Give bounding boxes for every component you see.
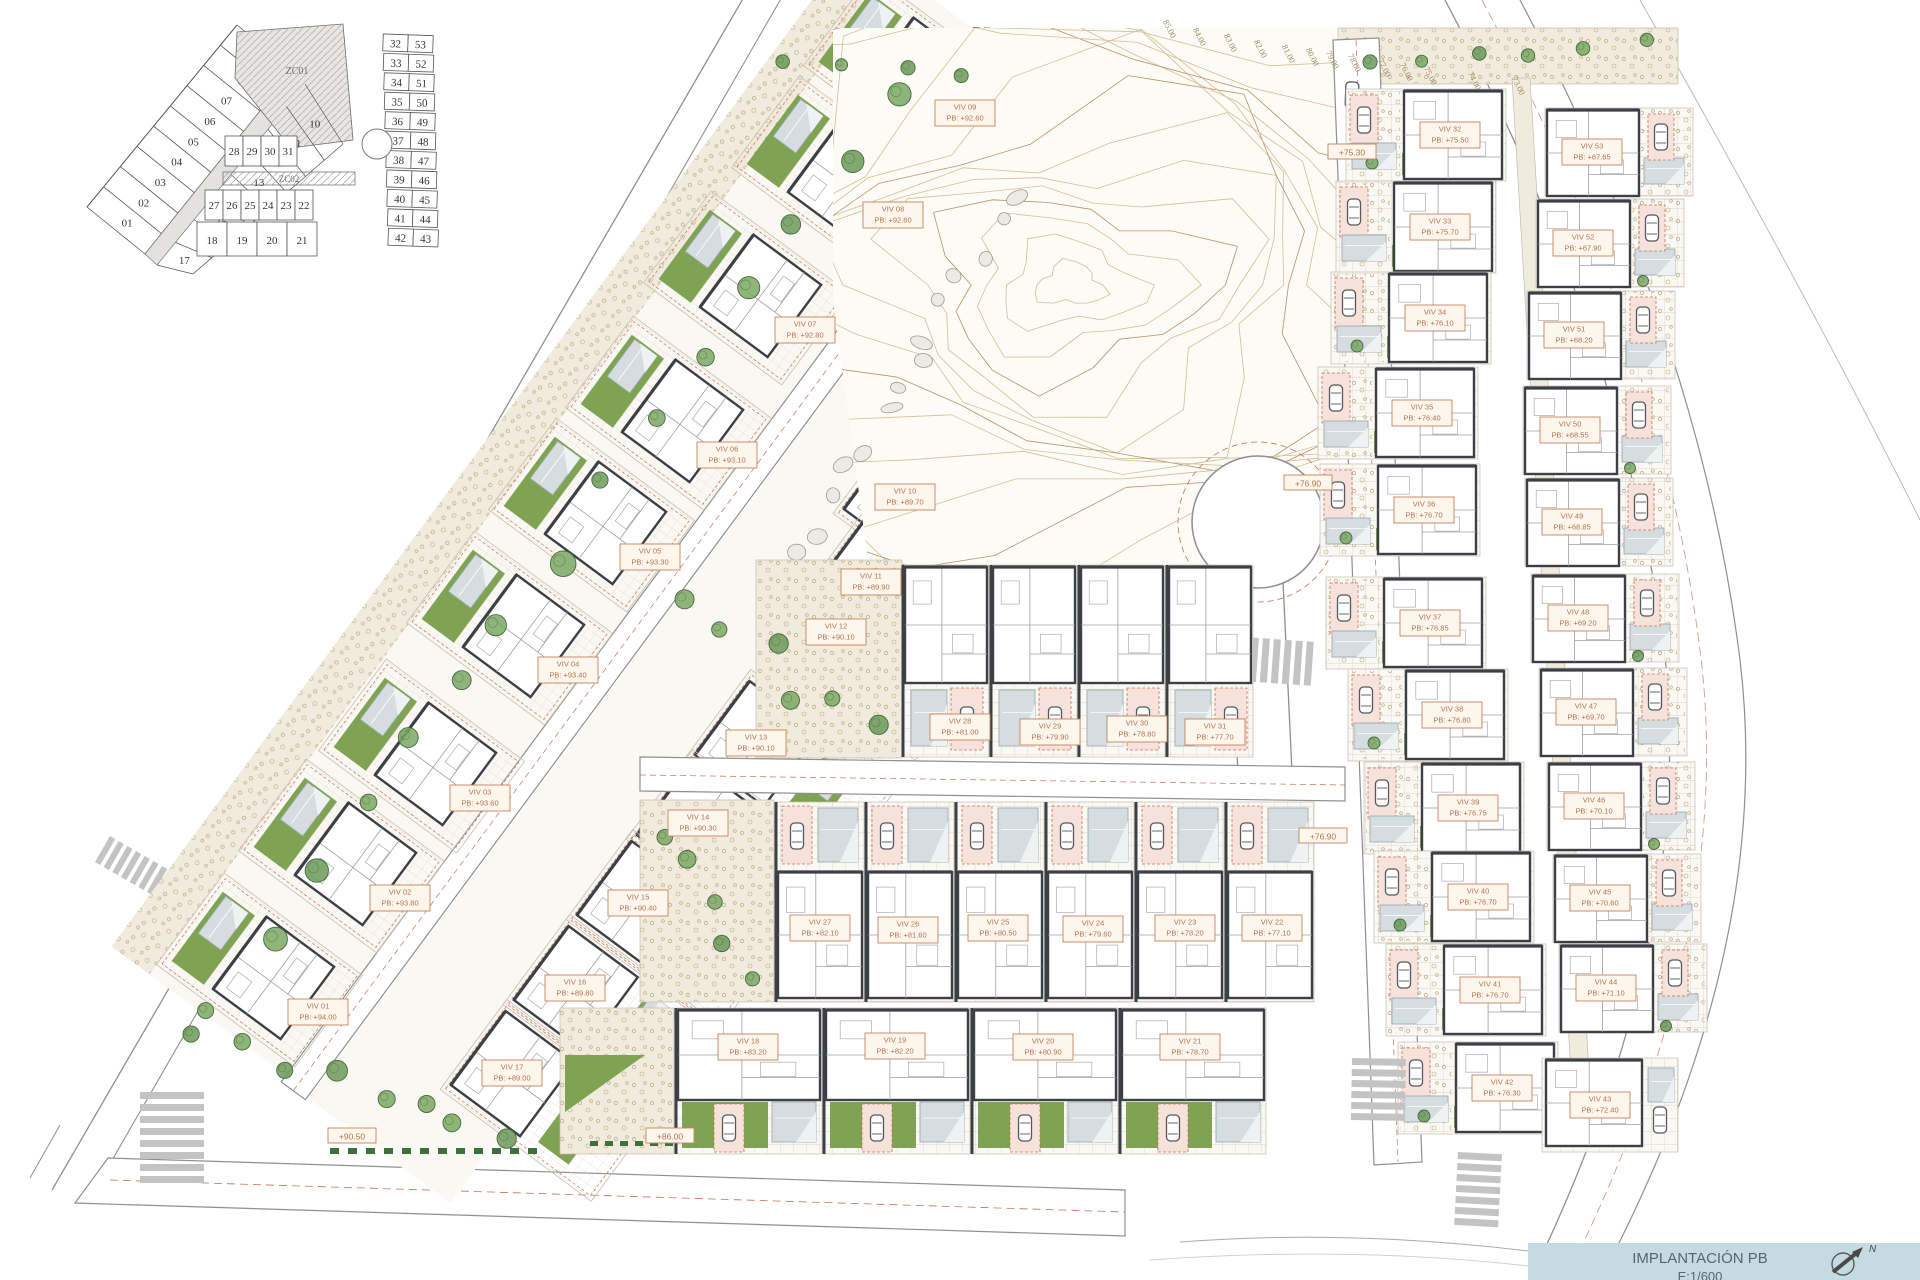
villa-ground-floor-level: PB: +76.70 [1459, 898, 1496, 907]
tree-icon [1416, 55, 1428, 67]
kp-lot-number: 38 [393, 155, 405, 167]
villa-plot-VIV-26 [866, 802, 954, 1002]
tree-icon [738, 277, 760, 299]
car-icon [971, 823, 984, 849]
tree-icon [745, 972, 759, 986]
car-body [1019, 1115, 1032, 1141]
crosswalk-stripe [140, 1128, 204, 1135]
villa-id: VIV 05 [639, 547, 662, 556]
kp-lot-number: 24 [263, 200, 275, 212]
hedge [348, 1148, 357, 1154]
kp-culdesac [362, 129, 392, 159]
crosswalk-stripe [1351, 1091, 1405, 1099]
villa-ground-floor-level: PB: +81.60 [889, 931, 926, 940]
kp-lot-number: 27 [209, 200, 221, 212]
villa-id: VIV 33 [1429, 217, 1452, 226]
tree-icon [1661, 1021, 1672, 1032]
car-icon [1410, 1060, 1423, 1086]
car-body [1061, 823, 1074, 849]
car-icon [1635, 494, 1648, 520]
villa-id: VIV 12 [825, 622, 848, 631]
car-body [881, 823, 894, 849]
villa-id: VIV 43 [1589, 1095, 1612, 1104]
villa-id: VIV 18 [737, 1037, 760, 1046]
tree-icon [1363, 55, 1377, 69]
car-body [1338, 595, 1351, 621]
car-icon [1655, 124, 1668, 150]
kp-lot-number: 07 [221, 96, 233, 108]
car-icon [1386, 869, 1399, 895]
tree-icon [198, 1003, 214, 1019]
car-icon [1663, 870, 1676, 896]
villa-label: VIV 34PB: +76.10 [1405, 305, 1465, 331]
tree-icon [183, 1026, 199, 1042]
swimming-pool [908, 808, 948, 862]
villa-ground-floor-level: PB: +76.30 [1483, 1089, 1520, 1098]
villa-label: VIV 05PB: +93.30 [620, 544, 680, 570]
villa-id: VIV 26 [897, 920, 920, 929]
villa-id: VIV 45 [1589, 888, 1612, 897]
tree-icon [305, 859, 328, 882]
car-body [871, 1115, 884, 1141]
car-body [1376, 780, 1389, 806]
kp-lot-number: 33 [390, 58, 402, 70]
villa-id: VIV 09 [954, 103, 977, 112]
swimming-pool [1646, 812, 1686, 838]
kp-lot-number: 23 [281, 200, 293, 212]
crosswalk-stripe [140, 1176, 204, 1183]
villa-id: VIV 51 [1563, 325, 1586, 334]
kp-lot-number: 19 [237, 235, 249, 247]
villa-label: VIV 19PB: +82.20 [865, 1033, 925, 1059]
villa-id: VIV 32 [1439, 125, 1462, 134]
villa-ground-floor-level: PB: +79.90 [1031, 733, 1068, 742]
site-plan-drawing: 010203040506070809ZC01101112131415161728… [0, 0, 1920, 1280]
kp-lot-number: 44 [419, 214, 431, 226]
swimming-pool [1635, 249, 1675, 275]
villa-label: VIV 51PB: +68.20 [1544, 322, 1604, 348]
tree-icon [1394, 919, 1406, 931]
villa-ground-floor-level: PB: +76.40 [1403, 414, 1440, 423]
villa-ground-floor-level: PB: +80.50 [979, 929, 1016, 938]
car-icon [1332, 482, 1345, 508]
villa-label: VIV 38PB: +76.80 [1422, 702, 1482, 728]
swimming-pool [1630, 624, 1670, 650]
swimming-pool [1216, 1102, 1260, 1142]
tree-icon [712, 622, 727, 637]
villa-id: VIV 46 [1583, 796, 1606, 805]
villa-ground-floor-level: PB: +92.60 [946, 114, 983, 123]
car-body [1241, 823, 1254, 849]
kp-zone-label: ZC02 [279, 174, 300, 184]
house-floorplan [1081, 567, 1163, 683]
swimming-pool [1178, 808, 1218, 862]
tree-icon [888, 83, 911, 106]
car-body [791, 823, 804, 849]
kp-lot-number: 21 [297, 235, 308, 247]
car-icon [1348, 199, 1361, 225]
villa-id: VIV 48 [1567, 608, 1590, 617]
car-icon [1061, 823, 1074, 849]
car-icon [1376, 780, 1389, 806]
kp-lot-number: 03 [155, 177, 167, 189]
tree-icon [708, 895, 723, 910]
hedge [456, 1148, 465, 1154]
swimming-pool [818, 808, 858, 862]
villa-ground-floor-level: PB: +93.80 [381, 899, 418, 908]
road-level-tag: +75.30 [1328, 144, 1376, 159]
tree-icon [1368, 737, 1380, 749]
car-icon [1657, 778, 1670, 804]
swimming-pool [1324, 421, 1368, 447]
villa-ground-floor-level: PB: +83.20 [729, 1048, 766, 1057]
villa-label: VIV 09PB: +92.60 [935, 100, 995, 126]
villa-id: VIV 17 [501, 1063, 524, 1072]
villa-label: VIV 11PB: +89.90 [841, 569, 901, 595]
villa-plot-VIV-20 [972, 1008, 1118, 1154]
road-level-tag: +86.00 [646, 1128, 694, 1143]
villa-id: VIV 31 [1204, 722, 1227, 731]
villa-label: VIV 35PB: +76.40 [1392, 400, 1452, 426]
car-icon [1669, 960, 1682, 986]
villa-plot-VIV-24 [1046, 802, 1134, 1002]
villa-label: VIV 07PB: +92.80 [775, 317, 835, 343]
car-icon [1151, 823, 1164, 849]
hedge [635, 1141, 643, 1146]
tree-icon [497, 1129, 516, 1148]
tree-icon [776, 55, 790, 69]
villa-id: VIV 07 [794, 320, 817, 329]
tree-icon [485, 615, 506, 636]
swimming-pool [1342, 235, 1386, 261]
villa-ground-floor-level: PB: +89.70 [886, 498, 923, 507]
villa-id: VIV 39 [1457, 798, 1480, 807]
villa-label: VIV 46PB: +70.10 [1564, 793, 1624, 819]
car-body [1410, 1060, 1423, 1086]
villa-ground-floor-level: PB: +68.20 [1555, 336, 1592, 345]
kp-lot-number: 41 [394, 213, 405, 225]
swimming-pool [772, 1102, 816, 1142]
tree-icon [697, 349, 714, 366]
villa-label: VIV 01PB: +94.00 [288, 999, 348, 1025]
car-icon [1338, 595, 1351, 621]
villa-label: VIV 14PB: +90.30 [668, 810, 728, 836]
kp-lot-number: 46 [418, 175, 430, 187]
car-body [1649, 684, 1662, 710]
villa-plot-VIV-21 [1120, 1008, 1266, 1154]
villa-ground-floor-level: PB: +93.30 [631, 558, 668, 567]
north-label: N [1869, 1244, 1877, 1255]
hedge [620, 1141, 628, 1146]
car-body [1343, 290, 1356, 316]
villa-ground-floor-level: PB: +77.70 [1196, 733, 1233, 742]
villa-ground-floor-level: PB: +70.10 [1575, 807, 1612, 816]
villa-id: VIV 10 [894, 487, 917, 496]
road-level-value: +76.90 [1295, 479, 1322, 489]
kp-lot-number: 30 [265, 146, 277, 158]
drawing-scale: E:1/600 [1678, 1269, 1723, 1280]
kp-lot-number: 34 [391, 77, 403, 89]
villa-ground-floor-level: PB: +71.10 [1587, 989, 1624, 998]
villa-label: VIV 10PB: +89.70 [875, 484, 935, 510]
tree-icon [675, 590, 694, 609]
villa-id: VIV 40 [1467, 887, 1490, 896]
tree-icon [1640, 33, 1653, 46]
villa-ground-floor-level: PB: +93.40 [549, 671, 586, 680]
villa-ground-floor-level: PB: +80.90 [1024, 1048, 1061, 1057]
tree-icon [781, 691, 799, 709]
swimming-pool [1626, 341, 1666, 367]
kp-lot-number: 26 [227, 200, 239, 212]
villa-id: VIV 23 [1174, 918, 1197, 927]
swimming-pool [1638, 718, 1678, 744]
villa-id: VIV 49 [1561, 512, 1584, 521]
villa-label: VIV 30PB: +78.80 [1107, 716, 1167, 742]
villa-ground-floor-level: PB: +90.10 [737, 744, 774, 753]
tree-icon [1576, 42, 1590, 56]
villa-label: VIV 08PB: +92.60 [863, 202, 923, 228]
tree-icon [1649, 839, 1660, 850]
crosswalk-stripe [140, 1140, 204, 1147]
car-icon [1637, 307, 1650, 333]
villa-id: VIV 14 [687, 813, 710, 822]
villa-id: VIV 47 [1575, 702, 1598, 711]
villa-ground-floor-level: PB: +78.20 [1166, 929, 1203, 938]
villa-label: VIV 47PB: +69.70 [1556, 699, 1616, 725]
hedge [330, 1148, 339, 1154]
car-body [1360, 687, 1373, 713]
hedge [605, 1141, 613, 1146]
villa-label: VIV 23PB: +78.20 [1155, 915, 1215, 941]
tree-icon [1418, 1110, 1430, 1122]
villa-id: VIV 21 [1179, 1037, 1202, 1046]
villa-id: VIV 50 [1559, 420, 1582, 429]
car-icon [1649, 684, 1662, 710]
kp-zone-label: ZC01 [286, 66, 309, 77]
road-level-value: +75.30 [1339, 148, 1366, 158]
house-floorplan [905, 567, 987, 683]
tree-icon [592, 472, 608, 488]
hedge [438, 1148, 447, 1154]
villa-id: VIV 37 [1419, 613, 1442, 622]
swimming-pool [1648, 1068, 1674, 1102]
villa-ground-floor-level: PB: +76.80 [1433, 716, 1470, 725]
car-body [1167, 1115, 1180, 1141]
villa-ground-floor-level: PB: +77.10 [1253, 929, 1290, 938]
tree-icon [418, 1096, 435, 1113]
villa-ground-floor-level: PB: +67.65 [1573, 153, 1610, 162]
tree-icon [901, 61, 915, 75]
crosswalk-stripe [1351, 1102, 1405, 1110]
kp-lot-number: 29 [247, 146, 259, 158]
villa-ground-floor-level: PB: +69.70 [1567, 713, 1604, 722]
car-body [1348, 199, 1361, 225]
car-body [1633, 402, 1646, 428]
crosswalk-stripe [140, 1116, 204, 1123]
villa-label: VIV 53PB: +67.65 [1562, 139, 1622, 165]
villa-id: VIV 11 [860, 572, 882, 581]
villa-ground-floor-level: PB: +89.90 [852, 583, 889, 592]
road-level-value: +90.50 [339, 1132, 366, 1142]
tree-icon [398, 728, 418, 748]
villa-ground-floor-level: PB: +76.70 [1471, 991, 1508, 1000]
villa-ground-floor-level: PB: +89.00 [493, 1074, 530, 1083]
kp-lot-number: 06 [204, 116, 216, 128]
swimming-pool [998, 808, 1038, 862]
road-level-value: +86.00 [657, 1132, 684, 1142]
kp-lot-number: 01 [122, 218, 133, 230]
car-icon [1241, 823, 1254, 849]
villa-ground-floor-level: PB: +67.90 [1564, 244, 1601, 253]
villa-id: VIV 04 [557, 660, 580, 669]
kp-lot-number: 28 [229, 146, 241, 158]
kp-lot-number: 49 [417, 117, 429, 129]
kp-lot-number: 25 [245, 200, 257, 212]
villa-ground-floor-level: PB: +92.80 [786, 331, 823, 340]
villa-ground-floor-level: PB: +75.50 [1431, 136, 1468, 145]
villa-id: VIV 06 [716, 445, 739, 454]
swimming-pool [1392, 998, 1436, 1024]
rock [787, 544, 806, 560]
kp-lot-number: 42 [395, 232, 406, 244]
villa-label: VIV 03PB: +93.60 [450, 785, 510, 811]
swimming-pool [1624, 528, 1664, 554]
kp-lot-number: 43 [420, 233, 432, 245]
car-icon [1019, 1115, 1032, 1141]
car-icon [791, 823, 804, 849]
villa-label: VIV 37PB: +76.85 [1400, 610, 1460, 636]
swimming-pool [1652, 904, 1692, 930]
villa-plot-VIV-25 [956, 802, 1044, 1002]
villa-label: VIV 49PB: +68.85 [1542, 509, 1602, 535]
villa-ground-floor-level: PB: +79.60 [1074, 930, 1111, 939]
villa-id: VIV 41 [1479, 980, 1502, 989]
villa-id: VIV 08 [882, 205, 905, 214]
title-block: IMPLANTACIÓN PB E:1/600 N [1528, 1243, 1920, 1280]
villa-label: VIV 33PB: +75.70 [1410, 214, 1470, 240]
villa-ground-floor-level: PB: +90.40 [619, 904, 656, 913]
villa-label: VIV 39PB: +76.75 [1438, 795, 1498, 821]
hedge [402, 1148, 411, 1154]
kp-lot-number: 32 [390, 38, 401, 50]
villa-id: VIV 22 [1261, 918, 1284, 927]
villa-ground-floor-level: PB: +93.60 [461, 799, 498, 808]
kp-lot-number: 17 [179, 255, 191, 267]
crosswalk-stripe [1351, 1080, 1405, 1088]
villa-ground-floor-level: PB: +82.10 [801, 929, 838, 938]
villa-label: VIV 52PB: +67.90 [1553, 230, 1613, 256]
kp-lot-number: 48 [417, 136, 429, 148]
car-icon [871, 1115, 884, 1141]
car-body [1635, 494, 1648, 520]
villa-ground-floor-level: PB: +68.55 [1551, 431, 1588, 440]
tree-icon [1340, 532, 1352, 544]
car-body [1330, 385, 1343, 411]
kp-lot-number: 04 [171, 157, 183, 169]
car-icon [881, 823, 894, 849]
villa-id: VIV 28 [949, 717, 972, 726]
villa-label: VIV 15PB: +90.40 [608, 890, 668, 916]
villa-id: VIV 03 [469, 788, 492, 797]
villa-label: VIV 48PB: +69.20 [1548, 605, 1608, 631]
road-level-tag: +76.90 [1284, 475, 1332, 490]
swimming-pool [1658, 994, 1698, 1020]
swimming-pool [1644, 158, 1684, 184]
villa-id: VIV 16 [564, 978, 587, 987]
villa-id: VIV 27 [809, 918, 832, 927]
crosswalk-stripe [1352, 1058, 1406, 1066]
site-plan-page: 010203040506070809ZC01101112131415161728… [0, 0, 1920, 1280]
villa-ground-floor-level: PB: +70.60 [1581, 899, 1618, 908]
villa-ground-floor-level: PB: +90.30 [679, 824, 716, 833]
crosswalk-stripe [140, 1104, 204, 1111]
villa-ground-floor-level: PB: +72.40 [1581, 1106, 1618, 1115]
kp-lot-number: 05 [188, 136, 200, 148]
car-icon [1358, 107, 1371, 133]
villa-ground-floor-level: PB: +94.00 [299, 1013, 336, 1022]
car-body [1646, 215, 1659, 241]
car-icon [1641, 590, 1654, 616]
villa-id: VIV 36 [1413, 500, 1436, 509]
tree-icon [835, 59, 847, 71]
villa-ground-floor-level: PB: +78.80 [1118, 730, 1155, 739]
villa-ground-floor-level: PB: +76.70 [1405, 511, 1442, 520]
car-icon [1167, 1115, 1180, 1141]
villa-label: VIV 13PB: +90.10 [726, 730, 786, 756]
tree-icon [452, 671, 471, 690]
villa-id: VIV 38 [1441, 705, 1464, 714]
hedge [528, 1148, 537, 1154]
villa-ground-floor-level: PB: +92.60 [874, 216, 911, 225]
tree-icon [781, 215, 801, 235]
crosswalk-stripe [140, 1152, 204, 1159]
crosswalk-stripe [140, 1092, 204, 1099]
villa-label: VIV 45PB: +70.60 [1570, 885, 1630, 911]
villa-id: VIV 35 [1411, 403, 1434, 412]
hedge [366, 1148, 375, 1154]
villa-label: VIV 43PB: +72.40 [1570, 1092, 1630, 1118]
villa-id: VIV 19 [884, 1036, 907, 1045]
tree-icon [1351, 340, 1363, 352]
villa-ground-floor-level: PB: +82.20 [876, 1047, 913, 1056]
hedge [510, 1148, 519, 1154]
villa-label: VIV 16PB: +89.80 [545, 975, 605, 1001]
tree-icon [264, 927, 288, 951]
car-body [1398, 962, 1411, 988]
car-icon [1633, 402, 1646, 428]
villa-label: VIV 02PB: +93.80 [370, 885, 430, 911]
villa-id: VIV 34 [1424, 308, 1447, 317]
road-level-tag: +90.50 [328, 1128, 376, 1143]
kp-lot-number: 40 [394, 194, 406, 206]
crosswalk-stripe [1352, 1069, 1406, 1077]
kp-lot-number: 45 [419, 194, 431, 206]
kp-lot-number: 37 [392, 135, 404, 147]
car-body [1654, 1107, 1667, 1133]
swimming-pool [1068, 1102, 1112, 1142]
villa-label: VIV 18PB: +83.20 [718, 1034, 778, 1060]
generated-plan-layers: 010203040506070809ZC01101112131415161728… [0, 0, 1920, 1280]
car-body [1386, 869, 1399, 895]
villa-id: VIV 29 [1039, 722, 1062, 731]
car-body [723, 1115, 736, 1141]
villa-label: VIV 21PB: +78.70 [1160, 1034, 1220, 1060]
car-icon [1646, 215, 1659, 241]
tree-icon [825, 691, 840, 706]
tree-icon [1473, 47, 1487, 61]
road-level-value: +76.90 [1310, 832, 1337, 842]
villa-plot-VIV-19 [824, 1008, 970, 1154]
